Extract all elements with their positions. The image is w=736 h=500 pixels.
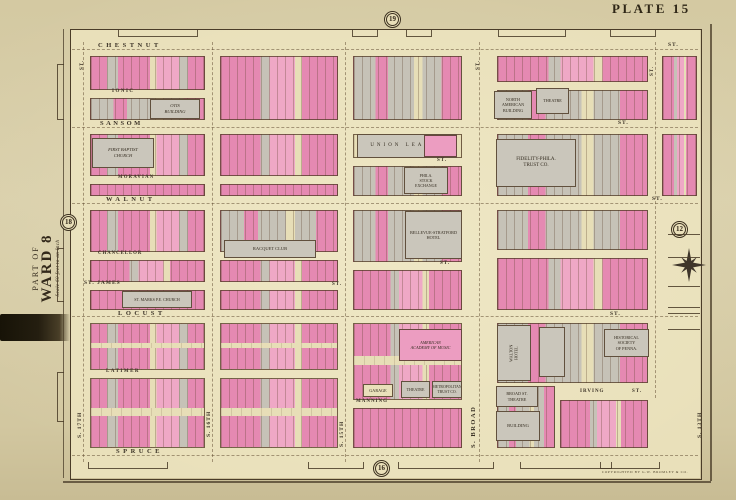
building-label: RACQUET CLUB	[253, 246, 287, 252]
building-label: BROAD ST.THEATRE	[506, 391, 527, 402]
street-label: CHESTNUT	[98, 43, 162, 50]
building-row	[91, 416, 204, 447]
street-centerline	[212, 42, 213, 462]
street-label: SPRUCE	[116, 449, 163, 456]
building-label: THEATRE	[407, 387, 425, 392]
plate-edge-bracket	[352, 30, 378, 37]
street-label: ST.	[650, 66, 655, 76]
street-label: S. 16TH	[207, 411, 213, 437]
street-label: ST.	[652, 197, 663, 203]
city-block	[353, 408, 462, 448]
building: ST. MARKS P.E. CHURCH	[122, 291, 192, 308]
plate-edge-bracket	[610, 30, 656, 37]
plate-badge-top: 19	[384, 11, 401, 28]
building-label: BELLEVUE-STRATFORDHOTEL	[410, 230, 457, 241]
atlas-sheet: OTISBUILDINGFIRST BAPTISTCHURCHUNION LEA…	[0, 0, 736, 500]
plate-edge-bracket	[406, 30, 432, 37]
street-label: WALNUT	[106, 197, 156, 204]
city-block	[662, 56, 697, 120]
building-label-line: EXCHANGE	[415, 183, 437, 188]
plate-edge-bracket	[308, 462, 364, 469]
city-block	[220, 184, 338, 196]
building: THEATRE	[401, 381, 430, 398]
street-label: ST.	[632, 389, 642, 394]
building-row	[91, 379, 204, 408]
scan-artifact-strip	[0, 314, 70, 341]
plate-badge-bottom-number: 16	[378, 465, 385, 472]
plate-edge-bracket	[498, 30, 566, 37]
bottom-outer-border	[63, 481, 711, 483]
city-block	[497, 258, 648, 310]
plate-badge-top-number: 19	[389, 16, 396, 23]
street-label: LOCUST	[118, 311, 166, 318]
street-label: ST.	[332, 282, 342, 287]
city-block	[90, 323, 205, 370]
street-centerline	[83, 42, 84, 462]
city-block	[220, 260, 338, 282]
building: THEATRE	[536, 88, 569, 114]
plate-edge-bracket	[57, 248, 64, 302]
plate-edge-bracket	[520, 462, 612, 469]
plate-edge-bracket	[118, 30, 198, 37]
building: METROPOLITANTRUST CO.	[432, 381, 462, 398]
street-centerline	[72, 127, 698, 128]
building: BUILDING	[496, 411, 540, 441]
street-centerline	[72, 203, 698, 204]
plate-edge-bracket	[600, 462, 660, 469]
street-centerline	[72, 455, 698, 456]
building-label: METROPOLITANTRUST CO.	[432, 385, 461, 394]
street-label: CHANCELLOR	[98, 252, 142, 257]
city-block	[662, 134, 697, 196]
ward-name: WARD 8	[40, 233, 56, 302]
plate-badge-right-number: 12	[676, 226, 683, 233]
city-block	[497, 56, 648, 82]
city-block	[220, 323, 338, 370]
street-label: ST. JAMES	[84, 281, 121, 287]
building-row	[221, 348, 337, 369]
building-label: FIDELITY-PHILA.TRUST CO.	[516, 157, 556, 170]
city-block	[220, 134, 338, 176]
street-centerline	[655, 42, 656, 398]
plate-edge-bracket	[398, 462, 494, 469]
plate-badge-bottom: 16	[373, 460, 390, 477]
building: FIDELITY-PHILA.TRUST CO.	[496, 139, 576, 187]
building	[424, 135, 457, 157]
building-row	[221, 416, 337, 447]
building: WALTONHOTEL	[497, 325, 531, 381]
publisher-imprint: COPYRIGHTED BY G.W. BROMLEY & CO.	[592, 470, 698, 474]
street-label: MANNING	[356, 399, 388, 404]
building-label-line: HOTEL	[427, 235, 441, 240]
building-label-line: RACQUET CLUB	[253, 246, 287, 252]
building-label-line: THEATRE	[543, 98, 562, 103]
street-label: ST.	[618, 121, 629, 127]
building-label-line: BUILDING	[503, 108, 523, 113]
right-outer-border	[710, 24, 712, 481]
building-row	[91, 324, 204, 343]
plate-edge-bracket	[668, 286, 700, 308]
building-label-line: OF PENNA.	[616, 346, 637, 351]
building: HISTORICALSOCIETYOF PENNA.	[604, 329, 649, 357]
city-block	[353, 56, 462, 120]
city-block	[90, 184, 205, 196]
street-label: ST.	[437, 158, 447, 163]
street-label: S. 17TH	[78, 412, 84, 438]
plate-edge-bracket	[57, 372, 64, 422]
building: PHILA.STOCKEXCHANGE	[404, 167, 448, 194]
city-block	[220, 378, 338, 448]
street-centerline	[72, 316, 698, 317]
street-label: S. BROAD	[471, 406, 478, 448]
building-label-line: HOTEL	[514, 346, 519, 360]
city-block	[560, 400, 648, 448]
plate-title: PLATE 15	[612, 1, 691, 17]
building-label: WALTONHOTEL	[509, 344, 520, 361]
building-label: NORTHAMERICANBUILDING	[502, 97, 524, 113]
building-label: THEATRE	[543, 98, 562, 103]
building-label: HISTORICALSOCIETYOF PENNA.	[614, 335, 639, 351]
city-block	[497, 210, 648, 250]
building-label: PHILA.STOCKEXCHANGE	[415, 173, 437, 188]
plate-edge-bracket	[88, 462, 168, 469]
map-field: OTISBUILDINGFIRST BAPTISTCHURCHUNION LEA…	[70, 29, 700, 478]
building-label: BUILDING	[507, 423, 529, 429]
building-label-line: GARAGE	[369, 388, 386, 393]
street-label: MORAVIAN	[118, 176, 154, 181]
building-label: ST. MARKS P.E. CHURCH	[134, 297, 180, 302]
building: GARAGE	[363, 384, 393, 397]
building: RACQUET CLUB	[224, 240, 316, 258]
building-label-line: TRUST CO.	[437, 390, 456, 395]
building: NORTHAMERICANBUILDING	[494, 91, 532, 119]
building-label: GARAGE	[369, 388, 386, 393]
street-centerline	[72, 49, 698, 50]
street-label: ST.	[476, 60, 481, 70]
street-label: S. 13TH	[698, 412, 704, 438]
city-block	[220, 56, 338, 120]
building-label-line: CHURCH	[114, 153, 133, 159]
plate-badge-left-number: 18	[65, 219, 72, 226]
building-label-line: ACADEMY OF MUSIC	[411, 345, 451, 350]
building: BELLEVUE-STRATFORDHOTEL	[405, 211, 462, 259]
building-row	[91, 348, 204, 369]
building-label-line: THEATRE	[407, 387, 425, 392]
street-centerline	[479, 42, 480, 462]
building-label-line: BUILDING	[165, 109, 186, 115]
street-label: ST.	[668, 43, 679, 49]
plate-edge-bracket	[668, 234, 700, 258]
street-label: LATIMER	[106, 369, 140, 374]
city-block	[90, 210, 205, 252]
plate-edge-bracket	[57, 64, 64, 120]
building: OTISBUILDING	[150, 99, 200, 119]
building-label-line: TRUST CO.	[523, 163, 548, 169]
street-label: ST.	[610, 312, 621, 318]
city-block	[90, 56, 205, 90]
building-label-line: ST. MARKS P.E. CHURCH	[134, 297, 180, 302]
street-label: S. 15TH	[340, 421, 346, 447]
building-row	[221, 379, 337, 408]
building-label: AMERICANACADEMY OF MUSIC	[411, 340, 451, 351]
building: BROAD ST.THEATRE	[496, 386, 538, 407]
building: AMERICANACADEMY OF MUSIC	[399, 329, 462, 361]
city-block	[353, 270, 462, 310]
building-label: FIRST BAPTISTCHURCH	[108, 147, 138, 158]
city-block	[220, 290, 338, 310]
building-label-line: THEATRE	[508, 397, 527, 402]
street-label: IRVING	[580, 389, 604, 394]
building: FIRST BAPTISTCHURCH	[92, 138, 154, 168]
plate-badge-left: 18	[60, 214, 77, 231]
street-label: ST.	[80, 60, 85, 70]
street-label: SANSOM	[100, 121, 143, 128]
building-label: OTISBUILDING	[165, 103, 186, 114]
street-label: IONIC	[112, 89, 135, 94]
city-block	[90, 260, 205, 282]
building-label-line: BUILDING	[507, 423, 529, 429]
street-centerline	[345, 42, 346, 462]
city-block	[90, 378, 205, 448]
street-label: ST.	[440, 261, 450, 266]
building	[539, 327, 565, 377]
building-row	[221, 324, 337, 343]
plate-edge-bracket	[668, 313, 700, 330]
